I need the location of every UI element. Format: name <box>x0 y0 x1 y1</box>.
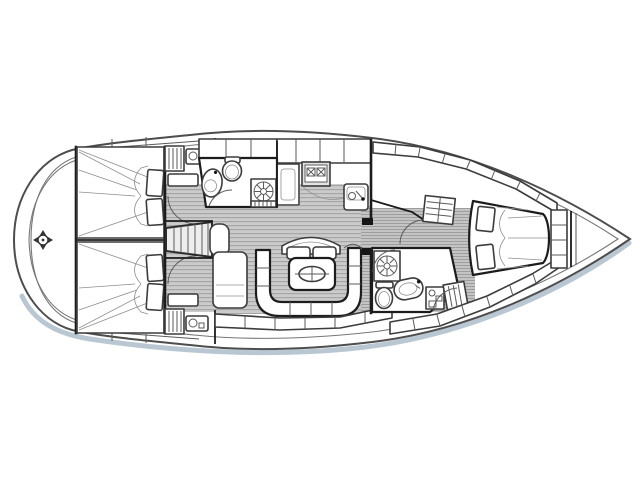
fridge-counter <box>277 164 299 205</box>
galley-top-lockers <box>277 139 371 163</box>
toilet-icon <box>223 157 242 181</box>
salon-side-cabinet <box>213 252 247 308</box>
berth-pillow-icon <box>476 206 495 232</box>
aft-head <box>199 157 277 207</box>
bow-shelf <box>551 210 567 268</box>
berth-pillow-icon <box>146 254 164 281</box>
vanity-bench <box>168 174 198 186</box>
companionway-steps-icon <box>166 222 212 257</box>
floor-plan-svg <box>0 0 640 480</box>
stove <box>302 162 330 186</box>
boat-floor-plan-image <box>0 0 640 480</box>
toilet-icon <box>376 282 394 309</box>
galley-sink <box>344 184 368 210</box>
v-berth <box>469 201 549 275</box>
shower-drain-grate-icon <box>251 179 276 207</box>
berth-pillow-icon <box>476 244 495 270</box>
berth-pillow-icon <box>146 283 164 310</box>
door-post <box>362 218 373 225</box>
shower-drain-grate-icon <box>374 251 400 281</box>
aft-cabin-port <box>77 147 164 238</box>
berth-pillow-icon <box>146 198 164 225</box>
aft-cabin-starboard <box>77 242 164 333</box>
vanity-bench <box>168 294 198 306</box>
louvered-locker-icon <box>423 196 456 225</box>
locker-row <box>199 139 277 158</box>
berth-pillow-icon <box>146 169 164 196</box>
head-cabinet <box>426 287 444 309</box>
salon-table <box>289 258 335 290</box>
